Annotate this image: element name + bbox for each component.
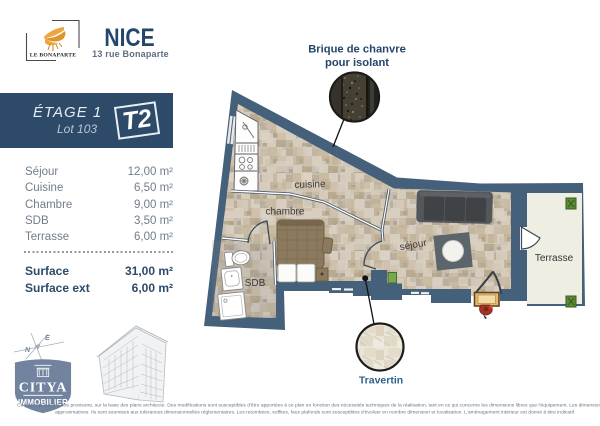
svg-text:Brique de chanvre: Brique de chanvre <box>308 44 406 56</box>
svg-text:N: N <box>25 347 31 354</box>
svg-text:Travertin: Travertin <box>359 375 403 387</box>
svg-text:E: E <box>45 335 50 342</box>
svg-text:cuisine: cuisine <box>294 179 326 191</box>
svg-text:CITYA: CITYA <box>19 380 68 396</box>
svg-text:SDB: SDB <box>245 278 266 289</box>
svg-text:chambre: chambre <box>266 207 305 218</box>
svg-text:pour isolant: pour isolant <box>325 57 389 69</box>
svg-text:Terrasse: Terrasse <box>535 253 574 264</box>
